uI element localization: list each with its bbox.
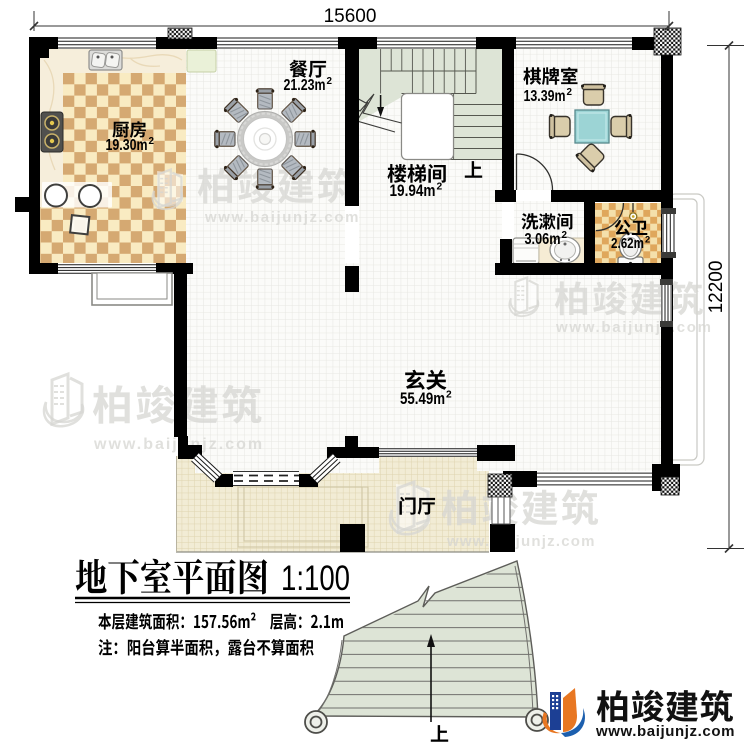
svg-text:2: 2 xyxy=(567,87,573,98)
svg-text:13.39m: 13.39m xyxy=(524,88,566,105)
svg-text:21.23m: 21.23m xyxy=(284,77,326,94)
svg-text:1:100: 1:100 xyxy=(281,559,350,598)
svg-text:2.62m: 2.62m xyxy=(611,235,644,252)
svg-text:3.06m: 3.06m xyxy=(525,231,561,248)
svg-text:2: 2 xyxy=(327,76,333,87)
svg-text:www.baijunjz.com: www.baijunjz.com xyxy=(446,533,596,550)
svg-text:55.49m: 55.49m xyxy=(400,390,445,408)
svg-text:2: 2 xyxy=(446,390,452,401)
svg-text:2: 2 xyxy=(562,230,568,241)
svg-text:2: 2 xyxy=(437,182,443,193)
svg-text:www.baijunjz.com: www.baijunjz.com xyxy=(555,319,713,336)
svg-text:12200: 12200 xyxy=(706,261,727,314)
svg-text:www.baijunjz.com: www.baijunjz.com xyxy=(204,209,360,226)
svg-text:19.30m: 19.30m xyxy=(106,137,148,154)
svg-text:19.94m: 19.94m xyxy=(390,182,436,200)
svg-text:15600: 15600 xyxy=(324,6,377,27)
svg-text:2: 2 xyxy=(645,234,650,244)
svg-text:2: 2 xyxy=(149,136,155,147)
svg-text:www.baijunjz.com: www.baijunjz.com xyxy=(595,723,735,740)
